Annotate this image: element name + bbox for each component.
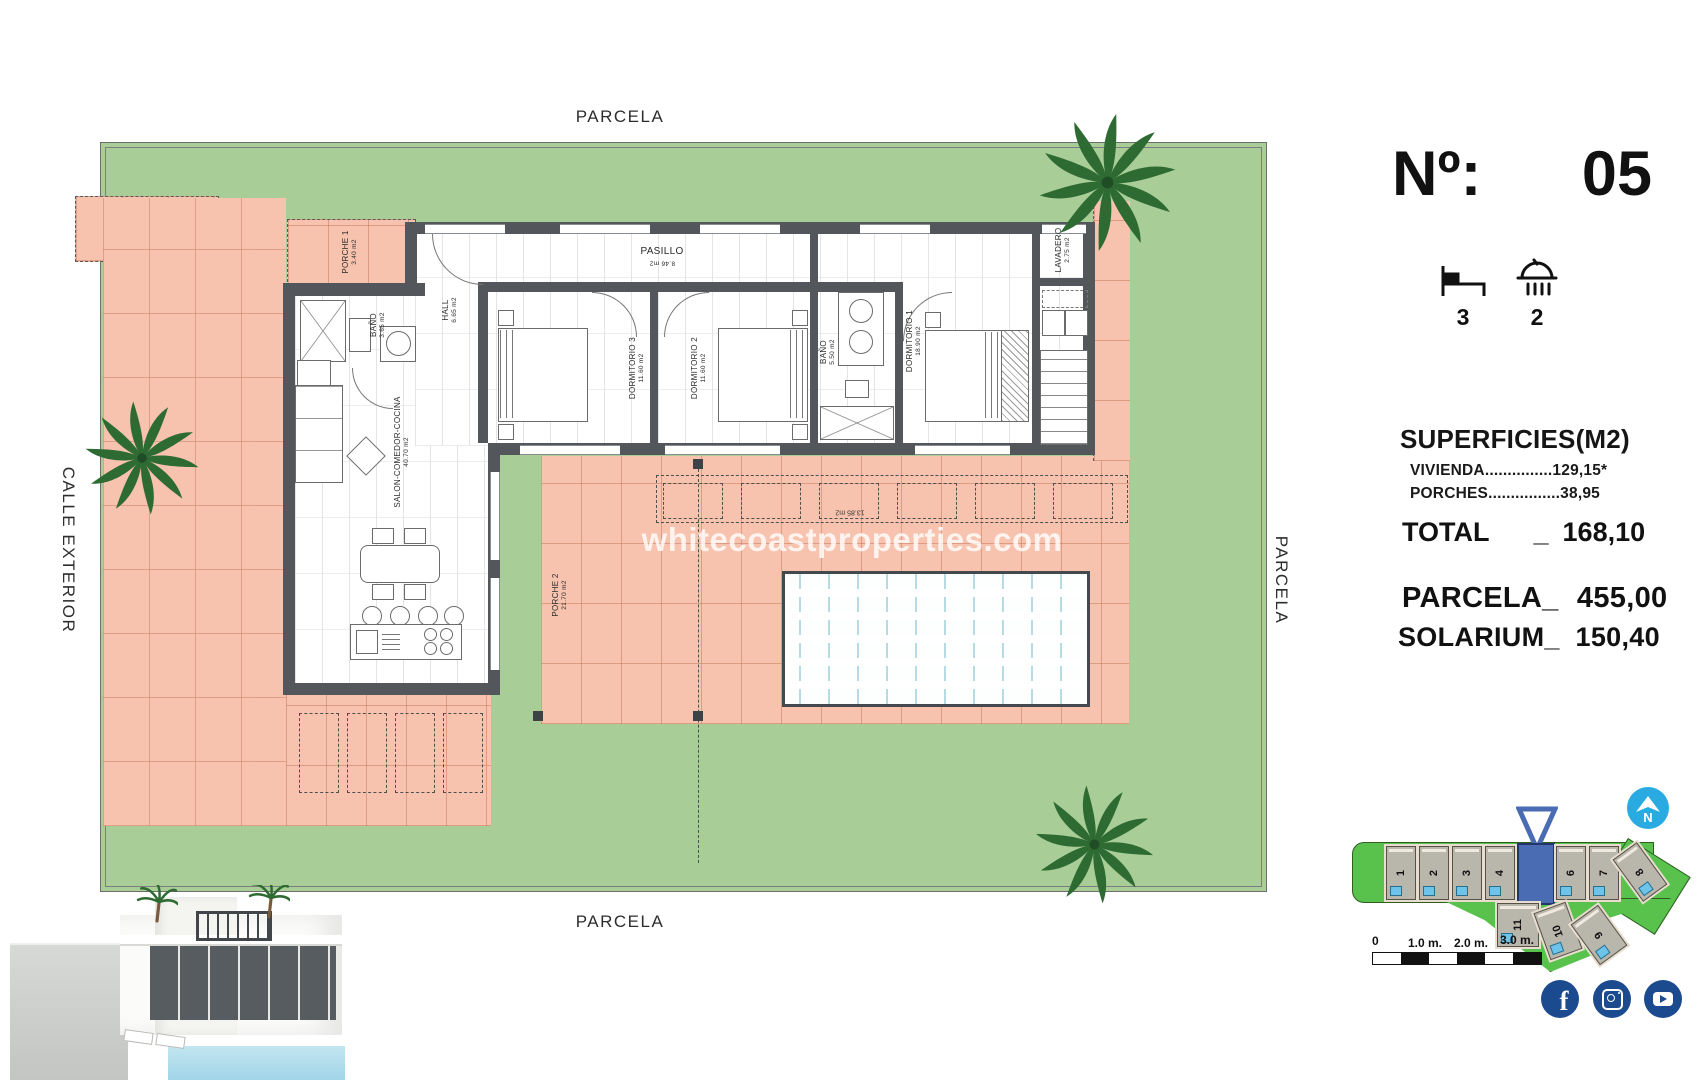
wall-bano-dorm1 (895, 282, 903, 443)
unit-number-row: Nº: 05 (1392, 138, 1652, 210)
parcela-row: PARCELA_ 455,00 (1402, 582, 1667, 615)
toilet (349, 318, 371, 352)
plot-number: 10 (1550, 923, 1565, 939)
pergola-square (663, 483, 723, 519)
nightstand (925, 312, 941, 328)
wall-hall-partition (478, 282, 488, 443)
staircase (1040, 350, 1088, 445)
hob-burner (424, 642, 437, 655)
plot-number: 1 (1395, 870, 1407, 876)
room-area: 3.65 m2 (379, 312, 386, 338)
bathrooms-stat: 2 (1514, 258, 1560, 331)
compass-north-icon: N (1626, 786, 1670, 830)
room-area: 5.50 m2 (829, 339, 836, 365)
bed-headboard (790, 330, 804, 418)
scale-segment (1513, 953, 1541, 964)
room-name: HALL (441, 299, 450, 320)
label-parcela-bottom: PARCELA (576, 912, 665, 932)
wall-west (283, 283, 295, 695)
site-plot: 7 (1589, 846, 1619, 900)
pergola-square (347, 713, 387, 793)
sun-lounger (155, 1033, 185, 1049)
pergola-square (299, 713, 339, 793)
chair (372, 584, 394, 600)
solarium-label: SOLARIUM_ (1398, 622, 1560, 652)
sofa (295, 385, 343, 483)
porche-2-boundary (698, 459, 699, 863)
site-plot: 6 (1556, 846, 1586, 900)
sink (849, 330, 873, 354)
hob-burner (440, 642, 453, 655)
nightstand (498, 424, 514, 440)
parcela-label: PARCELA_ (1402, 582, 1559, 614)
stool (418, 606, 438, 626)
sink (386, 331, 411, 356)
room-name: PORCHE 2 (551, 573, 560, 616)
bedrooms-stat: 3 (1438, 262, 1488, 331)
scale-segment (1401, 953, 1429, 964)
room-name: BAÑO (819, 340, 828, 364)
plot-number: 9 (1592, 929, 1605, 941)
palm-tree-icon (1035, 110, 1180, 255)
scale-label-2: 2.0 m. (1454, 936, 1488, 950)
shower-tray (300, 300, 346, 362)
pergola-square (395, 713, 435, 793)
room-label-bano-1: BAÑO 3.65 m2 (369, 312, 387, 338)
room-label-hall: HALL 6.65 m2 (441, 297, 459, 323)
room-name: BAÑO (369, 313, 378, 337)
scale-label-0: 0 (1372, 934, 1379, 948)
scale-bar (1372, 952, 1542, 965)
column (693, 459, 703, 469)
window-slider (520, 445, 620, 455)
porches-label: PORCHES (1410, 485, 1488, 502)
label-parcela-top: PARCELA (576, 107, 665, 127)
sink (849, 299, 873, 323)
wall-pasillo (478, 282, 903, 292)
floorplan-page: PORCHE 1 3.40 m2 HALL 6.65 m2 BAÑO 3.65 … (0, 0, 1700, 1080)
room-name: PASILLO (640, 246, 683, 258)
nightstand (792, 424, 808, 440)
pergola-square (1053, 483, 1113, 519)
glass-door (490, 578, 500, 670)
plot-number: 5 (1530, 871, 1542, 877)
site-plot-selected: 5 (1517, 843, 1555, 905)
surfaces-porches-row: PORCHES................38,95 (1410, 485, 1600, 503)
room-label-dorm-2: DORMITORIO 2 11.60 m2 (690, 337, 708, 399)
scale-label-3: 3.0 m. (1500, 933, 1534, 947)
room-area: 6.65 m2 (451, 297, 458, 323)
room-area: 18.90 m2 (915, 326, 922, 356)
villa-pool (168, 1043, 345, 1080)
room-label-dorm-1: DORMITORIO 1 18.90 m2 (905, 310, 923, 372)
palm-tree-icon (1032, 782, 1157, 907)
vivienda-label: VIVIENDA (1410, 462, 1485, 479)
total-separator: _ (1534, 517, 1549, 548)
hob-burner (424, 628, 437, 641)
room-name: DORMITORIO 3 (628, 337, 637, 399)
hob-burner (440, 628, 453, 641)
shower-tray (820, 406, 894, 440)
dots: ................ (1488, 485, 1560, 502)
wall-dorm1-stairs (1032, 222, 1040, 455)
wall-dorm3-dorm2 (650, 290, 658, 443)
facebook-icon[interactable]: f (1541, 980, 1579, 1018)
facebook-glyph: f (1560, 986, 1569, 1017)
youtube-icon[interactable] (1644, 980, 1682, 1018)
pergola-area-label: 13.85 m2 (835, 509, 864, 516)
glass-facade (150, 946, 336, 1020)
scale-label-1: 1.0 m. (1408, 936, 1442, 950)
plot-number: 7 (1598, 870, 1610, 876)
toilet (845, 380, 869, 398)
room-name: DORMITORIO 1 (905, 310, 914, 372)
wall-porch-south (283, 283, 425, 296)
pergola-square (741, 483, 801, 519)
window-slider (915, 445, 1010, 455)
column (533, 711, 543, 721)
bed-icon (1438, 262, 1488, 302)
window (425, 224, 505, 234)
shower-icon (1514, 258, 1560, 302)
room-area: 11.60 m2 (638, 353, 645, 382)
shelf (1042, 290, 1088, 308)
site-plot: 2 (1419, 846, 1449, 900)
column (693, 711, 703, 721)
room-area: 11.60 m2 (700, 353, 707, 382)
kitchen-sink (356, 630, 378, 654)
unit-number-label: Nº: (1392, 138, 1482, 210)
bathrooms-count: 2 (1531, 304, 1544, 331)
room-name: DORMITORIO 2 (690, 337, 699, 399)
garden-wall (10, 943, 128, 1080)
sofa-arm (297, 360, 331, 388)
washer (1042, 310, 1065, 336)
wall-salon-south (283, 683, 500, 695)
wall-lavadero (1040, 278, 1095, 286)
instagram-glyph (1602, 989, 1623, 1010)
room-area: 3.40 m2 (351, 239, 358, 265)
parcela-value: 455,00 (1577, 582, 1668, 614)
total-value: 168,10 (1563, 517, 1646, 548)
plot-number: 6 (1565, 870, 1577, 876)
nightstand (792, 310, 808, 326)
stool (390, 606, 410, 626)
palm-tree-icon (82, 398, 202, 518)
room-area: 40.70 m2 (403, 437, 410, 467)
label-calle-exterior: CALLE EXTERIOR (58, 467, 78, 634)
swimming-pool (782, 571, 1090, 707)
window (860, 224, 930, 234)
plot-number: 3 (1461, 870, 1473, 876)
surfaces-title: SUPERFICIES(M2) (1400, 424, 1630, 455)
wall-dorm2-bano (810, 234, 818, 443)
stool (362, 606, 382, 626)
dining-table (360, 545, 440, 583)
villa-render (0, 885, 345, 1080)
room-name: SALON-COMEDOR-COCINA (393, 396, 402, 507)
palm-tree-icon (136, 885, 178, 923)
dryer (1065, 310, 1088, 336)
scale-segment (1429, 953, 1457, 964)
pergola-square (897, 483, 957, 519)
room-area: 21.70 m2 (561, 580, 568, 610)
porches-value: 38,95 (1560, 485, 1600, 502)
window (700, 224, 780, 234)
solarium-value: 150,40 (1576, 622, 1660, 652)
total-label: TOTAL (1402, 517, 1490, 548)
room-label-dorm-3: DORMITORIO 3 11.60 m2 (628, 337, 646, 399)
surfaces-total-row: TOTAL _ 168,10 (1402, 517, 1645, 548)
chair (372, 528, 394, 544)
scale-segment (1457, 953, 1485, 964)
unit-number-value: 05 (1582, 138, 1652, 210)
stool (444, 606, 464, 626)
site-plot: 4 (1485, 846, 1515, 900)
label-parcela-right: PARCELA (1271, 536, 1291, 625)
nightstand (498, 310, 514, 326)
window-slider (665, 445, 780, 455)
glass-door (490, 472, 500, 560)
pergola-square (975, 483, 1035, 519)
room-label-pasillo: PASILLO 8.46 m2 (640, 246, 683, 266)
chair (404, 528, 426, 544)
plot-number: 4 (1494, 870, 1506, 876)
instagram-icon[interactable] (1593, 980, 1631, 1018)
scale-segment (1373, 953, 1401, 964)
vivienda-value: 129,15* (1552, 462, 1607, 479)
palm-tree-icon (248, 885, 290, 919)
wardrobe (1001, 330, 1029, 422)
dots: ............... (1485, 462, 1553, 479)
bed-headboard (500, 330, 514, 418)
room-label-porche-1: PORCHE 1 3.40 m2 (341, 230, 359, 273)
room-name: PORCHE 1 (341, 230, 350, 273)
site-plot: 3 (1452, 846, 1482, 900)
youtube-glyph (1653, 992, 1673, 1006)
chair (404, 584, 426, 600)
solarium-row: SOLARIUM_ 150,40 (1398, 622, 1660, 653)
plot-number: 11 (1512, 919, 1524, 931)
plot-number: 8 (1633, 866, 1646, 878)
pergola-square (443, 713, 483, 793)
plot-number: 2 (1428, 870, 1440, 876)
room-label-salon: SALON-COMEDOR-COCINA 40.70 m2 (393, 396, 411, 507)
room-label-bano-2: BAÑO 5.50 m2 (819, 339, 837, 365)
room-label-porche-2: PORCHE 2 21.70 m2 (551, 573, 569, 616)
drainer (382, 632, 400, 650)
site-plot: 1 (1386, 846, 1416, 900)
bedrooms-count: 3 (1457, 304, 1470, 331)
scale-segment (1485, 953, 1513, 964)
watermark: whitecoastproperties.com (642, 521, 1063, 559)
room-area: 8.46 m2 (649, 259, 675, 266)
surfaces-vivienda-row: VIVIENDA...............129,15* (1410, 462, 1607, 480)
bed-headboard (985, 332, 999, 418)
window (560, 224, 650, 234)
svg-text:N: N (1643, 810, 1652, 825)
